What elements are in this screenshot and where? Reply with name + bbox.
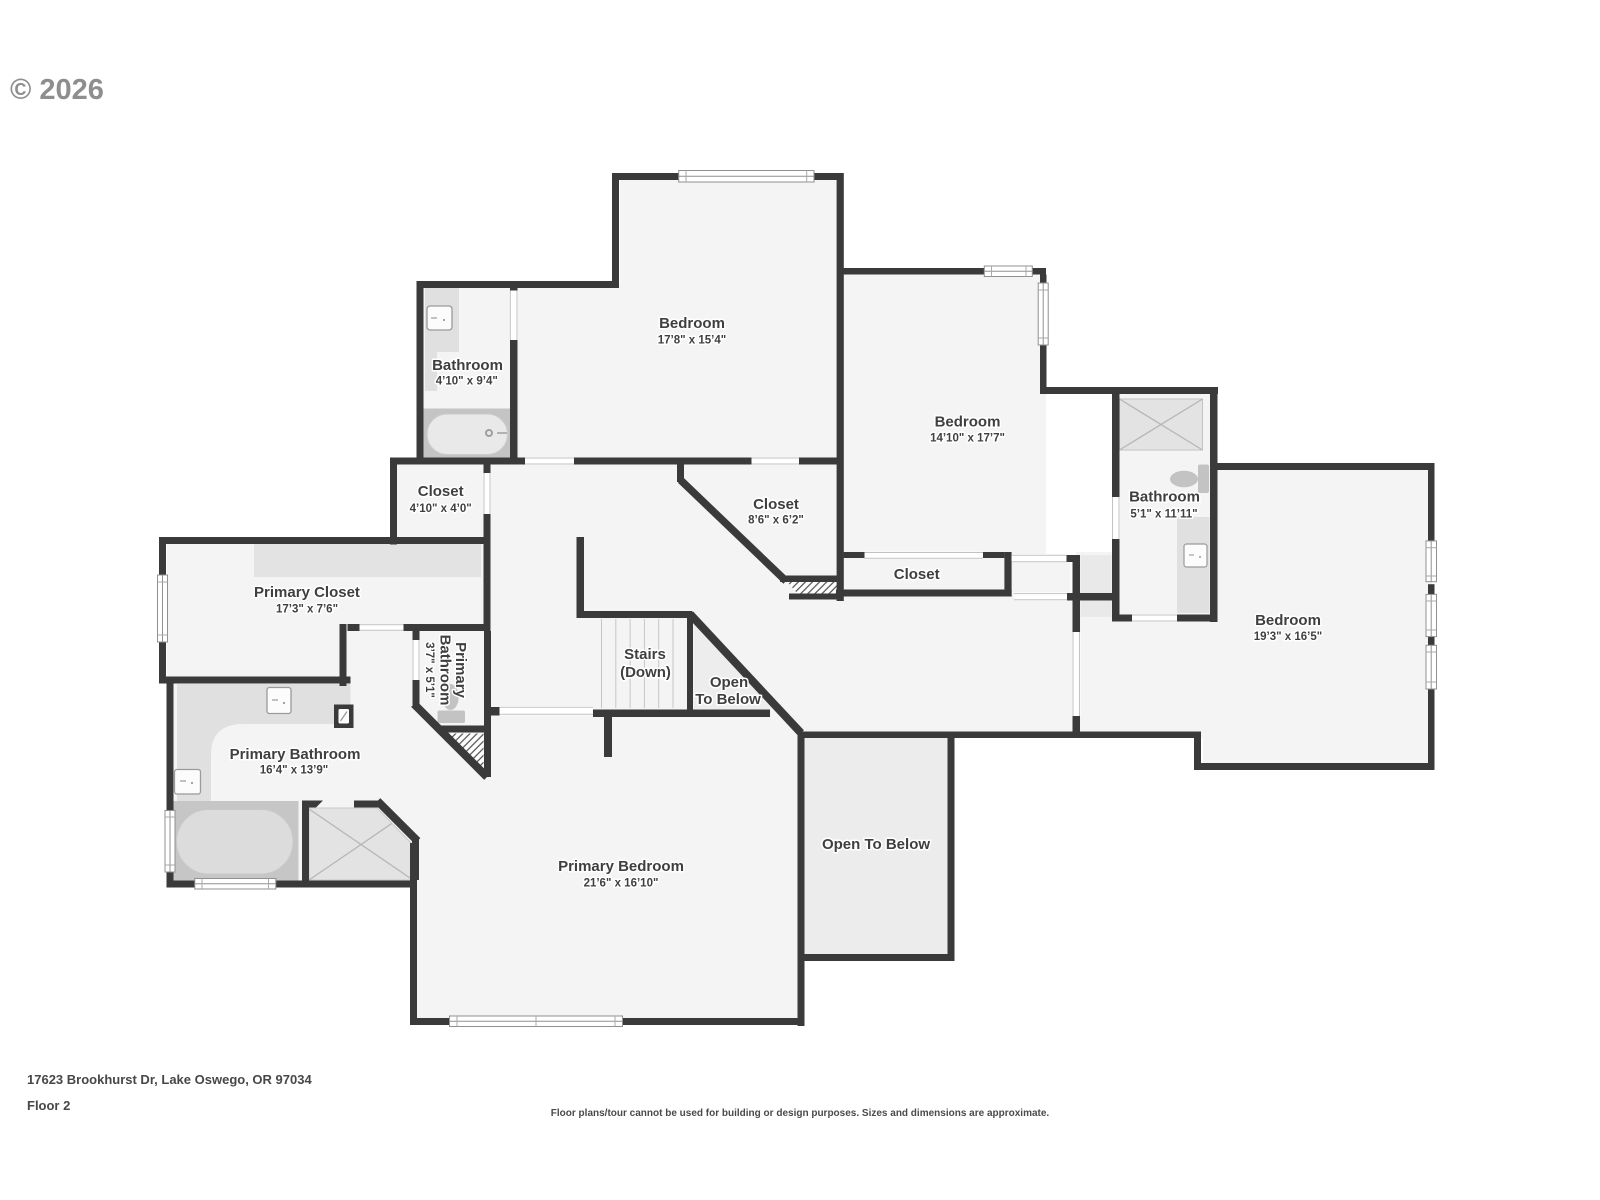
svg-text:Bathroom: Bathroom: [437, 635, 454, 706]
svg-text:17’3" x 7’6": 17’3" x 7’6": [276, 604, 338, 616]
svg-text:Floor plans/tour cannot be use: Floor plans/tour cannot be used for buil…: [551, 1108, 1050, 1119]
svg-text:14’10" x 17’7": 14’10" x 17’7": [930, 433, 1005, 445]
svg-text:Closet: Closet: [894, 566, 940, 583]
svg-text:Closet: Closet: [418, 483, 464, 500]
svg-text:Closet: Closet: [753, 496, 799, 513]
svg-text:© 2026: © 2026: [10, 74, 104, 106]
svg-text:(Down): (Down): [620, 664, 671, 681]
svg-text:5’1" x 11’11": 5’1" x 11’11": [1130, 509, 1197, 521]
svg-text:3’7" x 5’1": 3’7" x 5’1": [423, 642, 435, 698]
svg-text:19’3" x 16’5": 19’3" x 16’5": [1254, 631, 1322, 643]
svg-text:Primary Bedroom: Primary Bedroom: [558, 858, 684, 875]
svg-text:4’10" x 4’0": 4’10" x 4’0": [410, 503, 472, 515]
svg-text:Open To Below: Open To Below: [822, 836, 930, 853]
svg-text:Primary: Primary: [452, 642, 469, 699]
svg-text:17’8" x 15’4": 17’8" x 15’4": [658, 335, 726, 347]
svg-text:Floor 2: Floor 2: [27, 1098, 70, 1113]
svg-text:16’4" x 13’9": 16’4" x 13’9": [260, 765, 328, 777]
svg-text:8’6" x 6’2": 8’6" x 6’2": [748, 515, 804, 527]
svg-text:Primary Bathroom: Primary Bathroom: [230, 746, 361, 763]
svg-text:Primary Closet: Primary Closet: [254, 584, 360, 601]
svg-text:4’10" x 9’4": 4’10" x 9’4": [436, 376, 498, 388]
svg-text:Bedroom: Bedroom: [935, 414, 1001, 431]
svg-text:Bedroom: Bedroom: [659, 315, 725, 332]
svg-text:Bedroom: Bedroom: [1255, 612, 1321, 629]
svg-text:17623 Brookhurst Dr, Lake Oswe: 17623 Brookhurst Dr, Lake Oswego, OR 970…: [27, 1072, 312, 1087]
svg-text:To Below: To Below: [695, 691, 761, 708]
svg-text:Bathroom: Bathroom: [432, 357, 503, 374]
svg-text:21’6" x 16’10": 21’6" x 16’10": [584, 878, 659, 890]
svg-text:Stairs: Stairs: [624, 646, 666, 663]
svg-text:Bathroom: Bathroom: [1129, 489, 1200, 506]
svg-text:Open: Open: [710, 674, 748, 691]
